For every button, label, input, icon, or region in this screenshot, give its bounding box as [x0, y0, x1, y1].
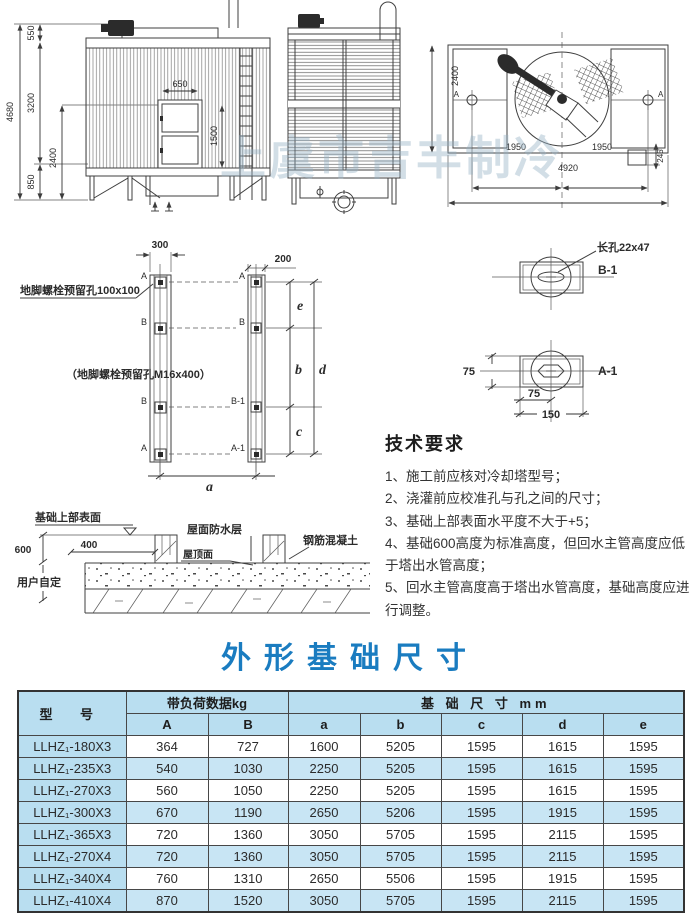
dim-outlet: 245	[656, 149, 665, 163]
bolt-label: B	[141, 317, 147, 327]
table-row: LLHZ₁-300X3670119026505206159519151595	[18, 802, 684, 824]
roof-label: 屋顶面	[183, 549, 213, 561]
pipe-flange-icon	[332, 190, 356, 214]
anchor-bolt-icon	[151, 202, 173, 211]
user-defined-label: 用户自定	[17, 575, 61, 589]
dim-a1-half: 75	[528, 388, 540, 400]
dim-c: c	[296, 425, 303, 440]
foundation-section-drawing: 基础上部表面 600 400 用户自定	[5, 505, 375, 630]
access-door	[158, 100, 202, 168]
value-cell: 2115	[522, 824, 603, 846]
value-cell: 720	[126, 824, 208, 846]
bolt-label: B	[239, 317, 245, 327]
value-cell: 5705	[360, 846, 441, 868]
table-row: LLHZ₁-410X4870152030505705159521151595	[18, 890, 684, 913]
table-body: LLHZ₁-180X336472716005205159516151595LLH…	[18, 736, 684, 913]
dim-right-width: 200	[275, 254, 292, 265]
value-cell: 1595	[441, 824, 522, 846]
value-cell: 1595	[603, 868, 684, 890]
model-cell: LLHZ₁-270X4	[18, 846, 126, 868]
waterproof-label: 屋面防水层	[187, 522, 242, 536]
detail-a1: A-1 75 75 150	[463, 340, 618, 422]
value-cell: 5205	[360, 780, 441, 802]
page: 4680 550 3200 850 2400	[0, 0, 700, 919]
model-cell: LLHZ₁-340X4	[18, 868, 126, 890]
value-cell: 560	[126, 780, 208, 802]
dim-mid: 3200	[26, 93, 36, 113]
dim-right-span: 1950	[592, 142, 612, 152]
col-header-model: 型 号	[18, 691, 126, 736]
dim-b: b	[295, 363, 302, 378]
dim-top: 550	[26, 25, 36, 40]
value-cell: 870	[126, 890, 208, 913]
col-header-c: c	[441, 714, 522, 736]
dim-600: 600	[15, 545, 32, 556]
value-cell: 1615	[522, 736, 603, 758]
col-group-load: 带负荷数据kg	[126, 691, 288, 714]
slot-note: 长孔22x47	[597, 240, 650, 254]
value-cell: 1595	[441, 780, 522, 802]
value-cell: 2115	[522, 890, 603, 913]
value-cell: 1030	[208, 758, 288, 780]
value-cell: 5705	[360, 824, 441, 846]
value-cell: 1615	[522, 780, 603, 802]
model-cell: LLHZ₁-270X3	[18, 780, 126, 802]
page-title: 外形基础尺寸	[0, 633, 700, 677]
col-header-B: B	[208, 714, 288, 736]
tech-item: 2、浇灌前应校准孔与孔之间的尺寸；	[385, 488, 695, 510]
bolt-strip-right: A B B-1 A-1 200	[231, 254, 296, 472]
value-cell: 1595	[603, 736, 684, 758]
value-cell: 1595	[603, 846, 684, 868]
table-row: LLHZ₁-270X3560105022505205159516151595	[18, 780, 684, 802]
value-cell: 727	[208, 736, 288, 758]
dim-left-width: 300	[152, 240, 169, 251]
value-cell: 1520	[208, 890, 288, 913]
fan-motor-icon	[298, 14, 320, 28]
value-cell: 1595	[441, 802, 522, 824]
detail-b1-title: B-1	[598, 263, 618, 277]
value-cell: 3050	[288, 890, 360, 913]
value-cell: 3050	[288, 824, 360, 846]
value-cell: 1310	[208, 868, 288, 890]
dim-depth: 2400	[450, 66, 460, 86]
value-cell: 1915	[522, 802, 603, 824]
value-cell: 2650	[288, 868, 360, 890]
dim-total-height: 4680	[5, 102, 15, 122]
value-cell: 1595	[441, 736, 522, 758]
value-cell: 3050	[288, 846, 360, 868]
col-header-A: A	[126, 714, 208, 736]
value-cell: 1360	[208, 824, 288, 846]
value-cell: 1600	[288, 736, 360, 758]
tech-item: 3、基础上部表面水平度不大于+5；	[385, 511, 695, 533]
value-cell: 1595	[603, 890, 684, 913]
value-cell: 1360	[208, 846, 288, 868]
bolt-strip-left: A B B A 300	[136, 240, 185, 472]
dim-door-height: 1500	[209, 126, 219, 146]
dim-base: 850	[26, 174, 36, 189]
dim-a: a	[206, 480, 213, 492]
value-cell: 5705	[360, 890, 441, 913]
value-cell: 1595	[441, 868, 522, 890]
col-header-b: b	[360, 714, 441, 736]
value-cell: 1190	[208, 802, 288, 824]
value-cell: 540	[126, 758, 208, 780]
tech-heading: 技术要求	[385, 430, 695, 456]
bolt-label: A	[141, 271, 147, 281]
tech-item: 5、回水主管高度高于塔出水管高度，基础高度应进行调整。	[385, 577, 695, 622]
dim-400: 400	[81, 540, 98, 551]
value-cell: 1595	[441, 846, 522, 868]
value-cell: 2650	[288, 802, 360, 824]
dim-inner: 2400	[48, 148, 58, 168]
section-mark-a-left: A	[454, 90, 460, 99]
table-row: LLHZ₁-235X3540103022505205159516151595	[18, 758, 684, 780]
surface-label: 基础上部表面	[34, 510, 101, 524]
table-row: LLHZ₁-365X3720136030505705159521151595	[18, 824, 684, 846]
hatch-pad	[574, 58, 624, 104]
value-cell: 720	[126, 846, 208, 868]
concrete-label: 钢筋混凝土	[303, 533, 358, 547]
table-row: LLHZ₁-270X4720136030505705159521151595	[18, 846, 684, 868]
col-header-d: d	[522, 714, 603, 736]
level-mark-icon	[124, 528, 136, 535]
col-header-e: e	[603, 714, 684, 736]
dim-door-width: 650	[172, 79, 187, 89]
col-header-a: a	[288, 714, 360, 736]
dim-d: d	[319, 363, 327, 378]
tech-item: 4、基础600高度为标准高度，但回水主管高度应低于塔出水管高度；	[385, 533, 695, 578]
foundation-pier	[155, 535, 285, 563]
value-cell: 5205	[360, 736, 441, 758]
tech-requirements: 技术要求 1、施工前应核对冷却塔型号； 2、浇灌前应校准孔与孔之间的尺寸； 3、…	[385, 430, 695, 622]
bolt-label: B-1	[231, 396, 245, 406]
section-mark-a-right: A	[658, 90, 664, 99]
detail-a1-title: A-1	[598, 364, 618, 378]
rubble-layer	[93, 589, 351, 613]
dim-a1-vertical: 75	[463, 366, 475, 378]
value-cell: 760	[126, 868, 208, 890]
value-cell: 1915	[522, 868, 603, 890]
model-cell: LLHZ₁-365X3	[18, 824, 126, 846]
value-cell: 1595	[603, 802, 684, 824]
spacing-dims: e b c d a	[148, 279, 327, 492]
bolt-label: A	[141, 443, 147, 453]
model-cell: LLHZ₁-410X4	[18, 890, 126, 913]
value-cell: 1595	[441, 890, 522, 913]
bolt-label: B	[141, 396, 147, 406]
dim-e: e	[297, 299, 303, 314]
value-cell: 1595	[603, 780, 684, 802]
value-cell: 670	[126, 802, 208, 824]
table-row: LLHZ₁-180X336472716005205159516151595	[18, 736, 684, 758]
model-cell: LLHZ₁-300X3	[18, 802, 126, 824]
value-cell: 2250	[288, 780, 360, 802]
table-row: LLHZ₁-340X4760131026505506159519151595	[18, 868, 684, 890]
value-cell: 5506	[360, 868, 441, 890]
model-cell: LLHZ₁-235X3	[18, 758, 126, 780]
bolt-label: A-1	[231, 443, 245, 453]
value-cell: 1595	[603, 758, 684, 780]
value-cell: 1595	[603, 824, 684, 846]
value-cell: 364	[126, 736, 208, 758]
spec-table: 型 号 带负荷数据kg 基 础 尺 寸 mm A B a b c d e LLH…	[17, 690, 685, 913]
bolt-label: A	[239, 271, 245, 281]
header-group-row: 型 号 带负荷数据kg 基 础 尺 寸 mm	[18, 691, 684, 714]
bolt-note-2: （地脚螺栓预留孔M16x400）	[66, 367, 211, 381]
bolt-note-1: 地脚螺栓预留孔100x100	[20, 283, 140, 297]
value-cell: 1050	[208, 780, 288, 802]
value-cell: 1595	[441, 758, 522, 780]
model-cell: LLHZ₁-180X3	[18, 736, 126, 758]
value-cell: 5205	[360, 758, 441, 780]
fan-motor-icon	[108, 20, 134, 36]
value-cell: 2115	[522, 846, 603, 868]
top-drawings: 4680 550 3200 850 2400	[0, 0, 700, 230]
detail-b1: 长孔22x47 B-1	[492, 240, 650, 310]
watermark: 上虞市吉丰制冷	[220, 122, 563, 188]
value-cell: 2250	[288, 758, 360, 780]
outlet-stub	[628, 150, 646, 165]
col-group-foundation: 基 础 尺 寸 mm	[288, 691, 684, 714]
tech-item: 1、施工前应核对冷却塔型号；	[385, 466, 695, 488]
value-cell: 1615	[522, 758, 603, 780]
dim-a1-width: 150	[542, 409, 560, 421]
value-cell: 5206	[360, 802, 441, 824]
